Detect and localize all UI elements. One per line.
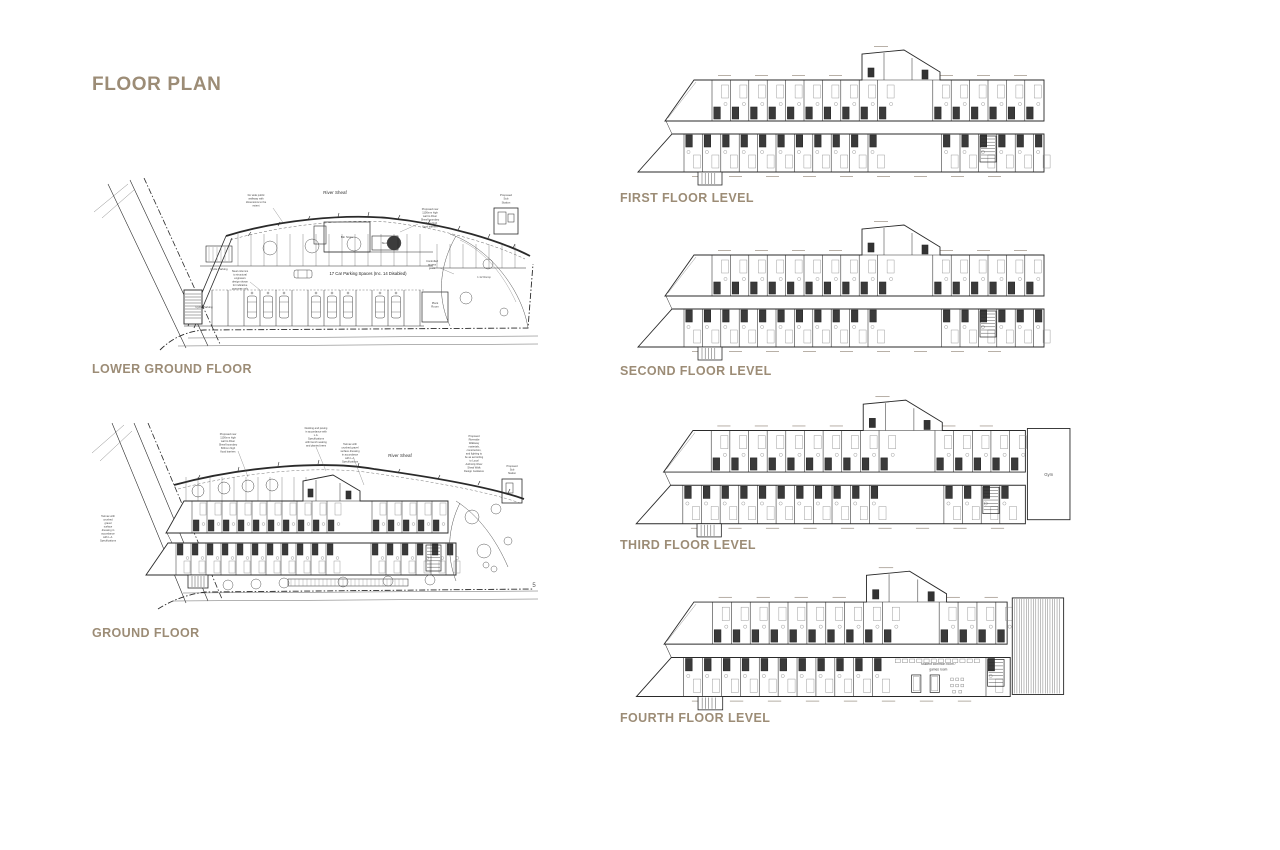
ground-floor-drawing: ProposedSubStationRiver SheafDecking and…: [88, 423, 538, 621]
walkway-note: walkway with: [248, 197, 264, 201]
columns-note: purposes only: [232, 287, 249, 291]
decking-note: and planted trees: [306, 444, 327, 448]
page-title: FLOOR PLAN: [92, 74, 222, 96]
tarmac-note-left: Specifications: [100, 539, 117, 543]
plant-room-label: Room: [431, 305, 439, 309]
wall-note: flood barriers: [422, 225, 438, 229]
tarmac-note: Specifications: [342, 460, 359, 464]
tarmac-note: crushed gravel: [341, 446, 358, 450]
caption-fourth: FOURTH FLOOR LEVEL: [620, 711, 770, 725]
wall-note: Sheaf boundary: [219, 443, 238, 447]
tarmac-note-left: accordance: [101, 532, 115, 536]
columns-note: Steel columns: [232, 269, 249, 273]
decking-note: with bench seating: [305, 440, 327, 444]
decking-note: Specifications: [308, 437, 325, 441]
wall-note: 600mm high: [221, 446, 236, 450]
riverside-note: Walkway: [469, 441, 480, 445]
tarmac-note-left: dressing in: [102, 528, 115, 532]
caption-third: THIRD FLOOR LEVEL: [620, 538, 756, 552]
tarmac-note: in accordance: [342, 453, 359, 457]
caption-ground: GROUND FLOOR: [92, 626, 200, 640]
riverside-note: be as according: [465, 455, 484, 459]
columns-note: engineers: [234, 276, 246, 280]
riverside-note: Sheaf Walk: [467, 466, 481, 470]
tarmac-note: Tarmac with: [343, 442, 357, 446]
tarmac-note-left: surface: [104, 525, 113, 529]
games-room-label: games room: [929, 667, 947, 671]
fourth-floor-drawing: student common room /games room: [620, 563, 1078, 715]
wall-note: 1100mm high: [422, 211, 438, 215]
decking-note: Decking and paving: [305, 426, 328, 430]
cycle-parking-upper-label: Cycle Parking: [210, 267, 228, 271]
gym-label: Gym: [1044, 472, 1053, 477]
tarmac-note-left: crushed: [103, 518, 113, 522]
river-sheaf-label: River Sheaf: [388, 453, 412, 458]
bin-store-label: Bin Store: [341, 235, 354, 239]
caption-lower-ground: LOWER GROUND FLOOR: [92, 362, 252, 376]
wall-note: 600mm high: [423, 221, 438, 225]
second-floor-drawing: [622, 217, 1068, 365]
tarmac-note-left: gravel: [104, 521, 111, 525]
river-sheaf-label: River Sheaf: [323, 190, 347, 195]
access-gates-label: gates: [429, 266, 436, 270]
riverside-note: construction,: [467, 448, 482, 452]
lower-ground-floor-drawing: Cycle ParkingBin StoreStore17 Car Parkin…: [88, 178, 538, 353]
third-floor-drawing: Gym: [620, 392, 1072, 542]
walkway-note: 3m wide public: [247, 193, 265, 197]
wall-note: Proposed new: [220, 432, 237, 436]
tarmac-note-left: with L.A.: [103, 535, 113, 539]
riverside-note: Proposed: [468, 434, 480, 438]
caption-first: FIRST FLOOR LEVEL: [620, 191, 754, 205]
sub-station-label: Sub: [510, 468, 515, 472]
riverside-note: and lighting to: [466, 452, 483, 456]
wall-note: wall to River: [423, 214, 437, 218]
sub-station-label: Station: [508, 471, 517, 475]
walkway-note: dimensions to the: [246, 200, 267, 204]
first-floor-drawing: [622, 42, 1068, 190]
wall-note: Sheaf boundary: [421, 218, 440, 222]
wall-note: Proposed new: [422, 207, 439, 211]
wall-note: wall to River: [221, 439, 235, 443]
walkway-note: extent: [252, 204, 259, 208]
riverside-note: Riverside: [469, 438, 480, 442]
cycle-parking-lower-label: Cycle Parking: [195, 305, 213, 309]
store-label: Store: [382, 241, 389, 245]
sub-station-label: Station: [502, 200, 511, 204]
columns-note: to structural: [233, 273, 247, 277]
sub-station-label: Proposed: [506, 464, 518, 468]
decking-note: in accordance with: [305, 430, 327, 434]
wall-note: 1100mm high: [220, 436, 236, 440]
tarmac-note: surface dressing: [340, 449, 360, 453]
riverside-note: Design Guidance: [464, 469, 484, 473]
ramp-label: 1:12 Ramp: [477, 275, 491, 279]
floor-plan-sheet: FLOOR PLAN Cycle ParkingBin StoreStore17…: [0, 0, 1280, 850]
parking-count-label: 17 Car Parking Spaces (Inc. 14 Disabled): [329, 271, 407, 276]
riverside-note: Authority River: [465, 462, 482, 466]
numeral-5: 5: [532, 583, 536, 589]
wall-note: flood barriers: [220, 450, 236, 454]
caption-second: SECOND FLOOR LEVEL: [620, 364, 772, 378]
tarmac-note-left: Tarmac with: [101, 514, 115, 518]
decking-note: L.A.: [314, 433, 319, 437]
columns-note: design shown: [232, 280, 248, 284]
columns-note: for indicative: [233, 283, 248, 287]
access-gates-label: Controlled: [426, 259, 438, 263]
riverside-note: to Local: [469, 459, 479, 463]
riverside-note: materials,: [468, 445, 480, 449]
tarmac-note: with L.A.: [345, 456, 355, 460]
